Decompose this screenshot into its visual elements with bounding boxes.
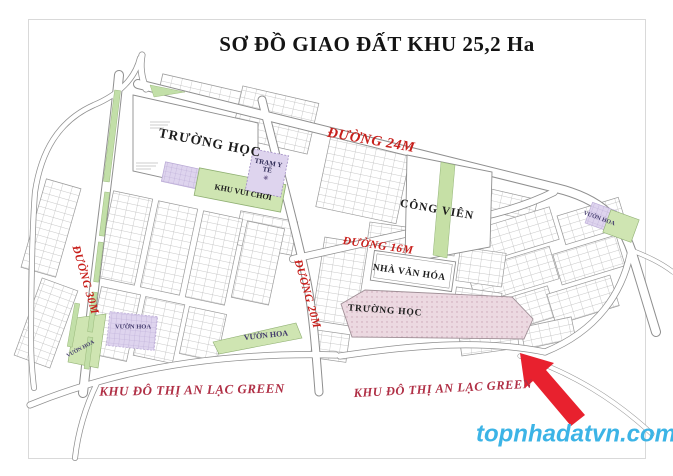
district-label-left: KHU ĐÔ THỊ AN LẠC GREEN: [99, 382, 285, 399]
flower-garden-bl-label: VƯỜN HOA: [115, 325, 151, 332]
map-graphic: [0, 0, 673, 476]
watermark: topnhadatvn.com: [476, 421, 673, 446]
land-allocation-map: SƠ ĐỒ GIAO ĐẤT KHU 25,2 Ha ĐƯỜNG 24M ĐƯỜ…: [0, 0, 673, 476]
page-title: SƠ ĐỒ GIAO ĐẤT KHU 25,2 Ha: [219, 33, 534, 55]
